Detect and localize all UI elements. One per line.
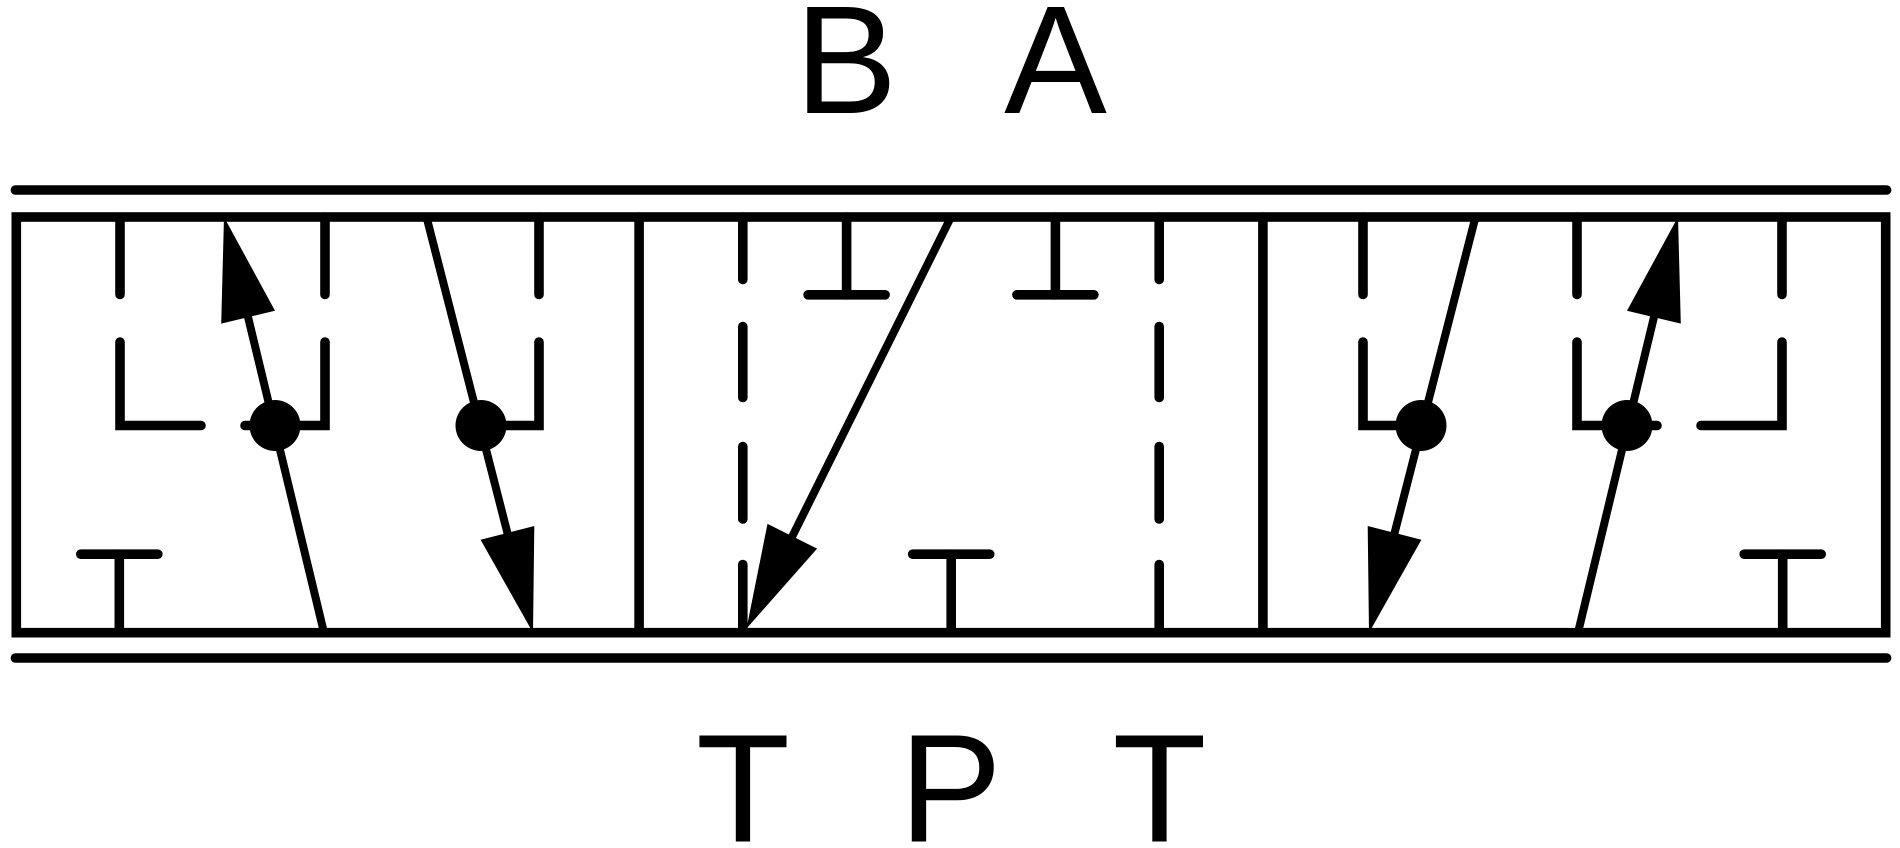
svg-text:T: T — [696, 703, 790, 848]
svg-text:A: A — [1004, 0, 1107, 146]
svg-text:P: P — [899, 703, 1002, 848]
svg-text:T: T — [1112, 703, 1206, 848]
svg-text:B: B — [795, 0, 898, 146]
